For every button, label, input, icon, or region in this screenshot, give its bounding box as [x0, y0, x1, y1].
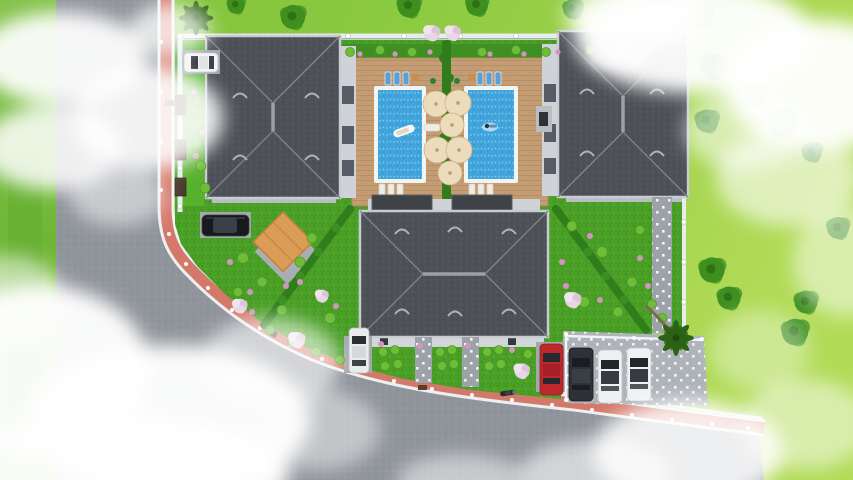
pool-left — [374, 86, 426, 183]
balcony — [342, 86, 354, 104]
parasol — [446, 137, 472, 163]
car-white-top — [184, 53, 218, 72]
parasol — [440, 113, 464, 137]
balcony — [342, 126, 354, 144]
bottom-residential-block — [360, 195, 548, 347]
car-parked-white-1 — [598, 350, 622, 403]
car-silver — [349, 328, 369, 373]
left-residential-block — [206, 36, 356, 203]
entrance-door — [539, 112, 548, 126]
swimmer — [482, 123, 498, 132]
car-red — [540, 344, 563, 395]
car-parked-dark — [569, 348, 593, 401]
car-parked-white-2 — [627, 348, 651, 401]
balcony — [342, 160, 354, 176]
balcony — [544, 158, 556, 174]
balcony — [544, 84, 556, 102]
pool-right — [464, 86, 518, 183]
fog-wisp-roof — [588, 42, 648, 70]
car-black — [202, 215, 249, 236]
parasol — [445, 90, 471, 116]
site-plan-svg — [0, 0, 853, 480]
aerial-render-canvas — [0, 0, 853, 480]
parasol — [438, 161, 462, 185]
